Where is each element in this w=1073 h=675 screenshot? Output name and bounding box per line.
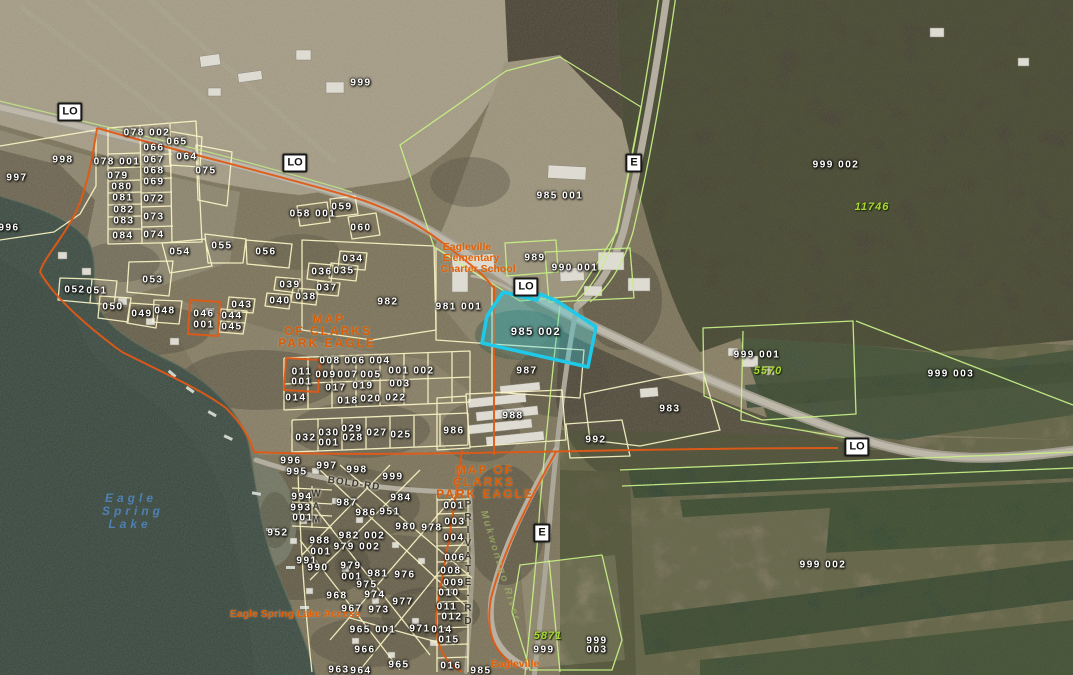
aerial-basemap xyxy=(0,0,1073,675)
map-viewport[interactable]: 999998997996078 002078 00106606506706407… xyxy=(0,0,1073,675)
